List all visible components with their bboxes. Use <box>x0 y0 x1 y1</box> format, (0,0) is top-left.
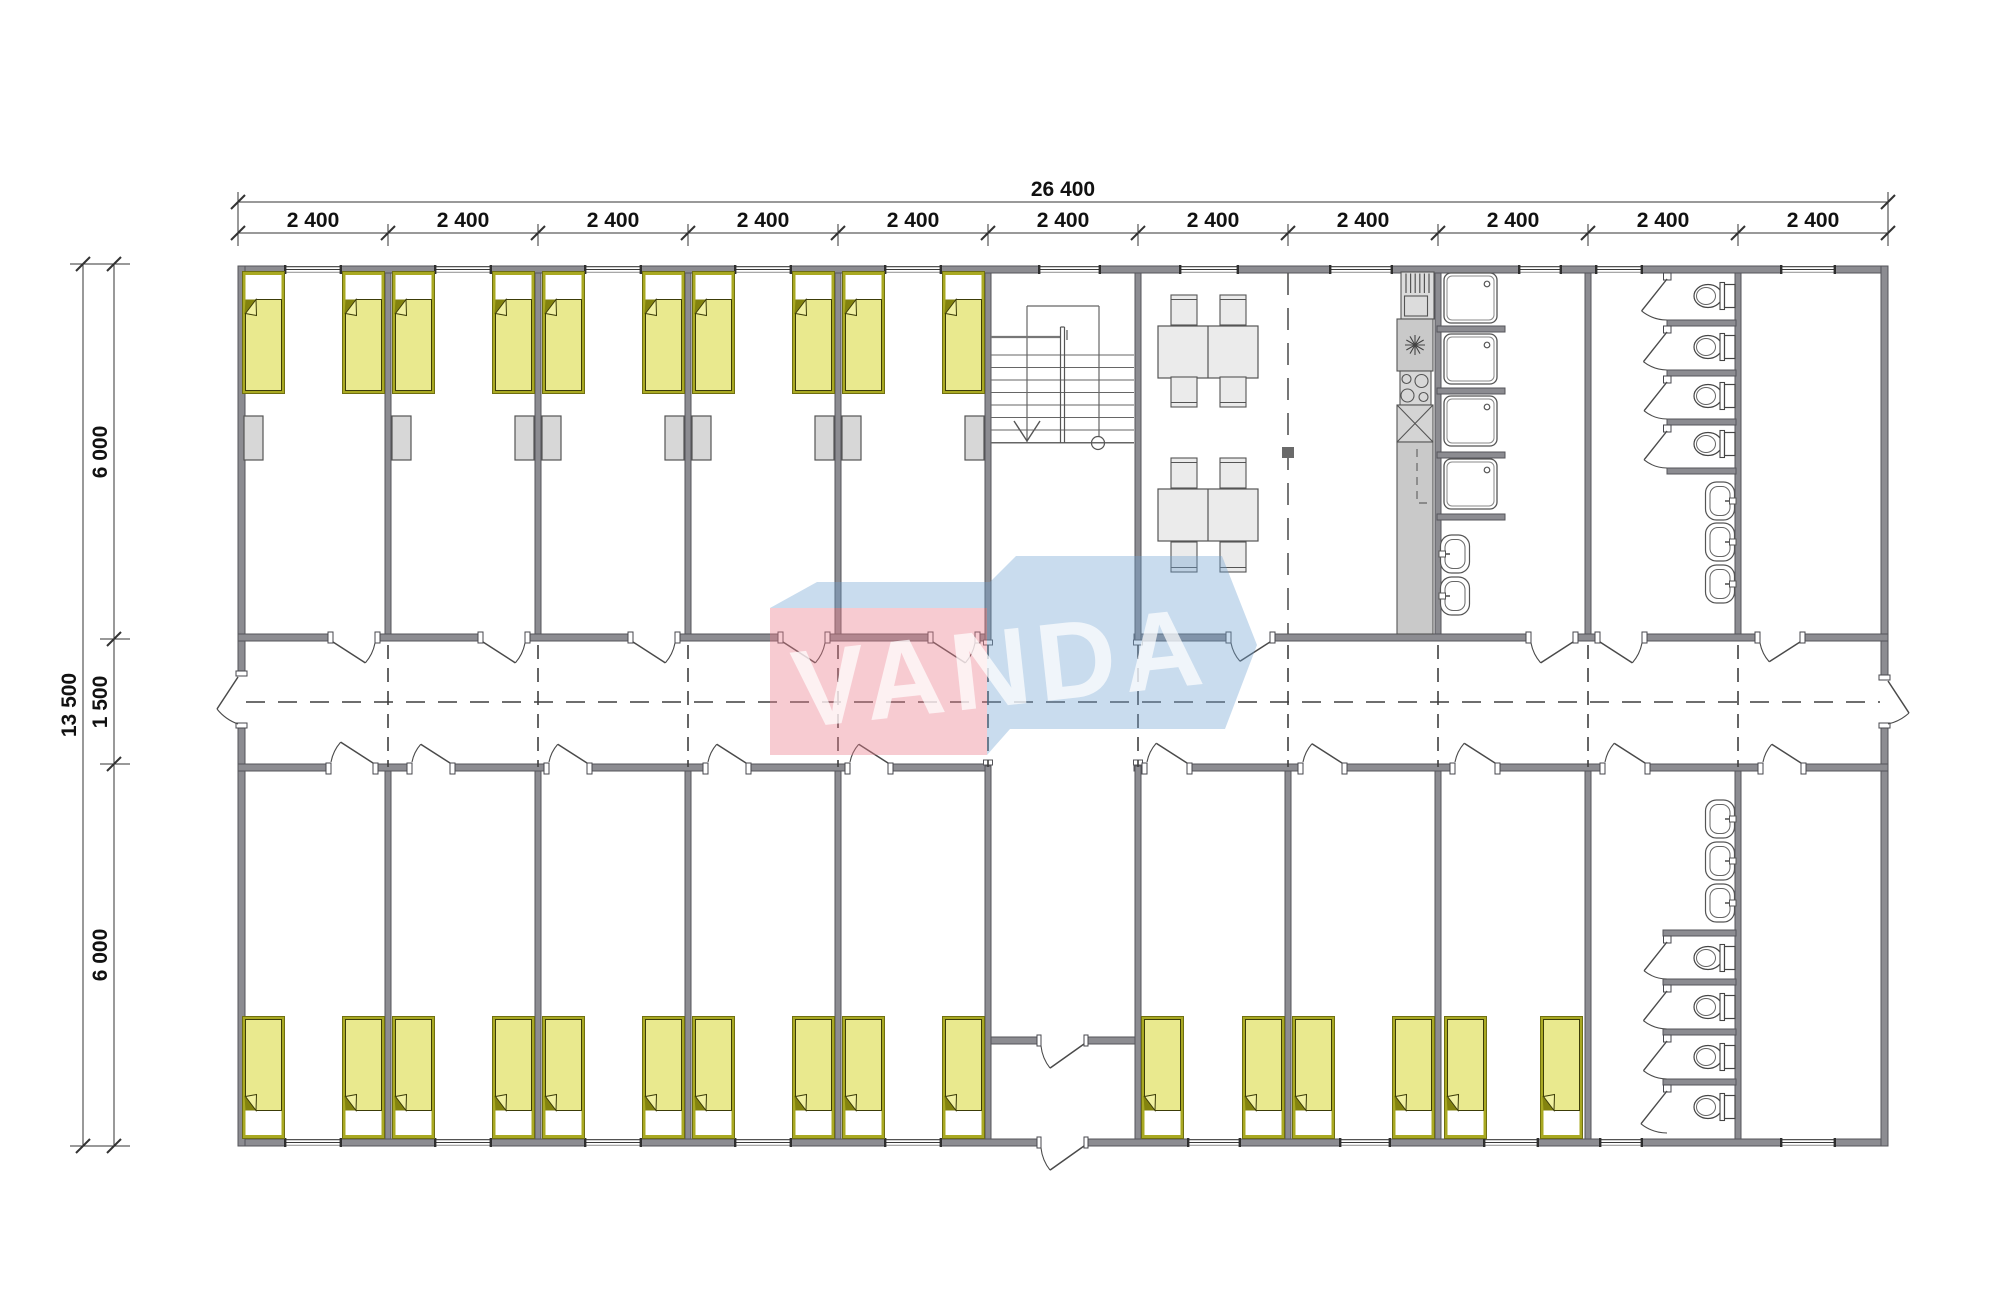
svg-text:2 400: 2 400 <box>1037 209 1090 232</box>
svg-text:2 400: 2 400 <box>1187 209 1240 232</box>
svg-text:26 400: 26 400 <box>1031 178 1095 201</box>
svg-text:2 400: 2 400 <box>887 209 940 232</box>
svg-text:2 400: 2 400 <box>587 209 640 232</box>
svg-text:2 400: 2 400 <box>287 209 340 232</box>
svg-text:2 400: 2 400 <box>1337 209 1390 232</box>
svg-text:1 500: 1 500 <box>89 676 112 729</box>
svg-text:2 400: 2 400 <box>1637 209 1690 232</box>
svg-text:2 400: 2 400 <box>1487 209 1540 232</box>
svg-text:2 400: 2 400 <box>437 209 490 232</box>
svg-text:13 500: 13 500 <box>58 673 81 737</box>
svg-text:2 400: 2 400 <box>737 209 790 232</box>
svg-text:2 400: 2 400 <box>1787 209 1840 232</box>
svg-text:6 000: 6 000 <box>89 929 112 982</box>
svg-text:6 000: 6 000 <box>89 426 112 479</box>
